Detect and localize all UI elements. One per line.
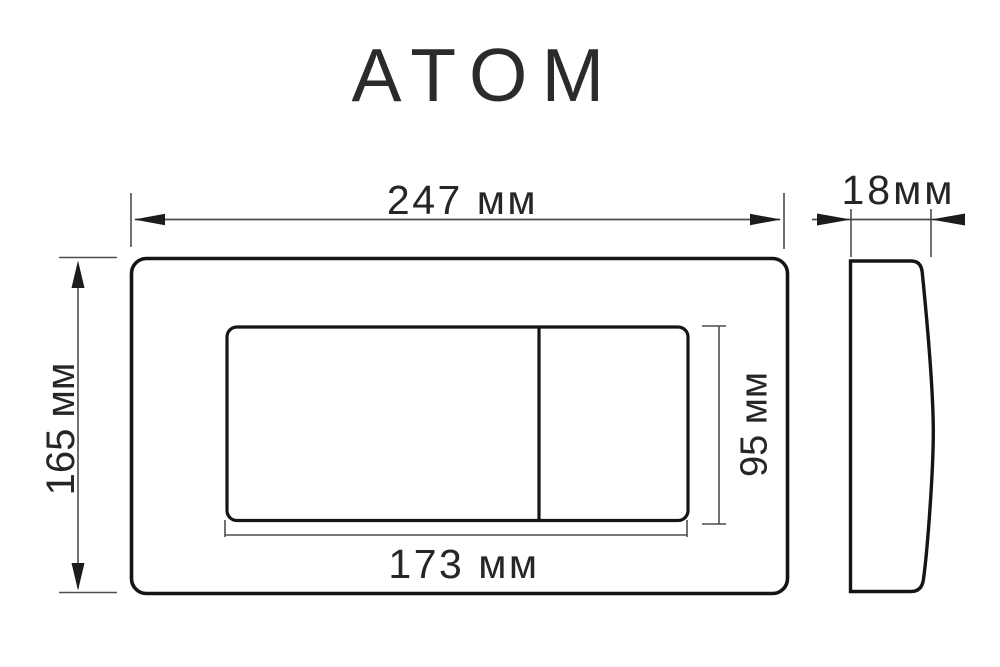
svg-text:18мм: 18мм (842, 167, 956, 213)
svg-text:165 мм: 165 мм (39, 363, 83, 496)
svg-text:ATOM: ATOM (352, 33, 619, 117)
svg-text:173 мм: 173 мм (388, 541, 539, 587)
svg-text:95 мм: 95 мм (734, 372, 776, 477)
svg-text:247 мм: 247 мм (387, 177, 538, 223)
